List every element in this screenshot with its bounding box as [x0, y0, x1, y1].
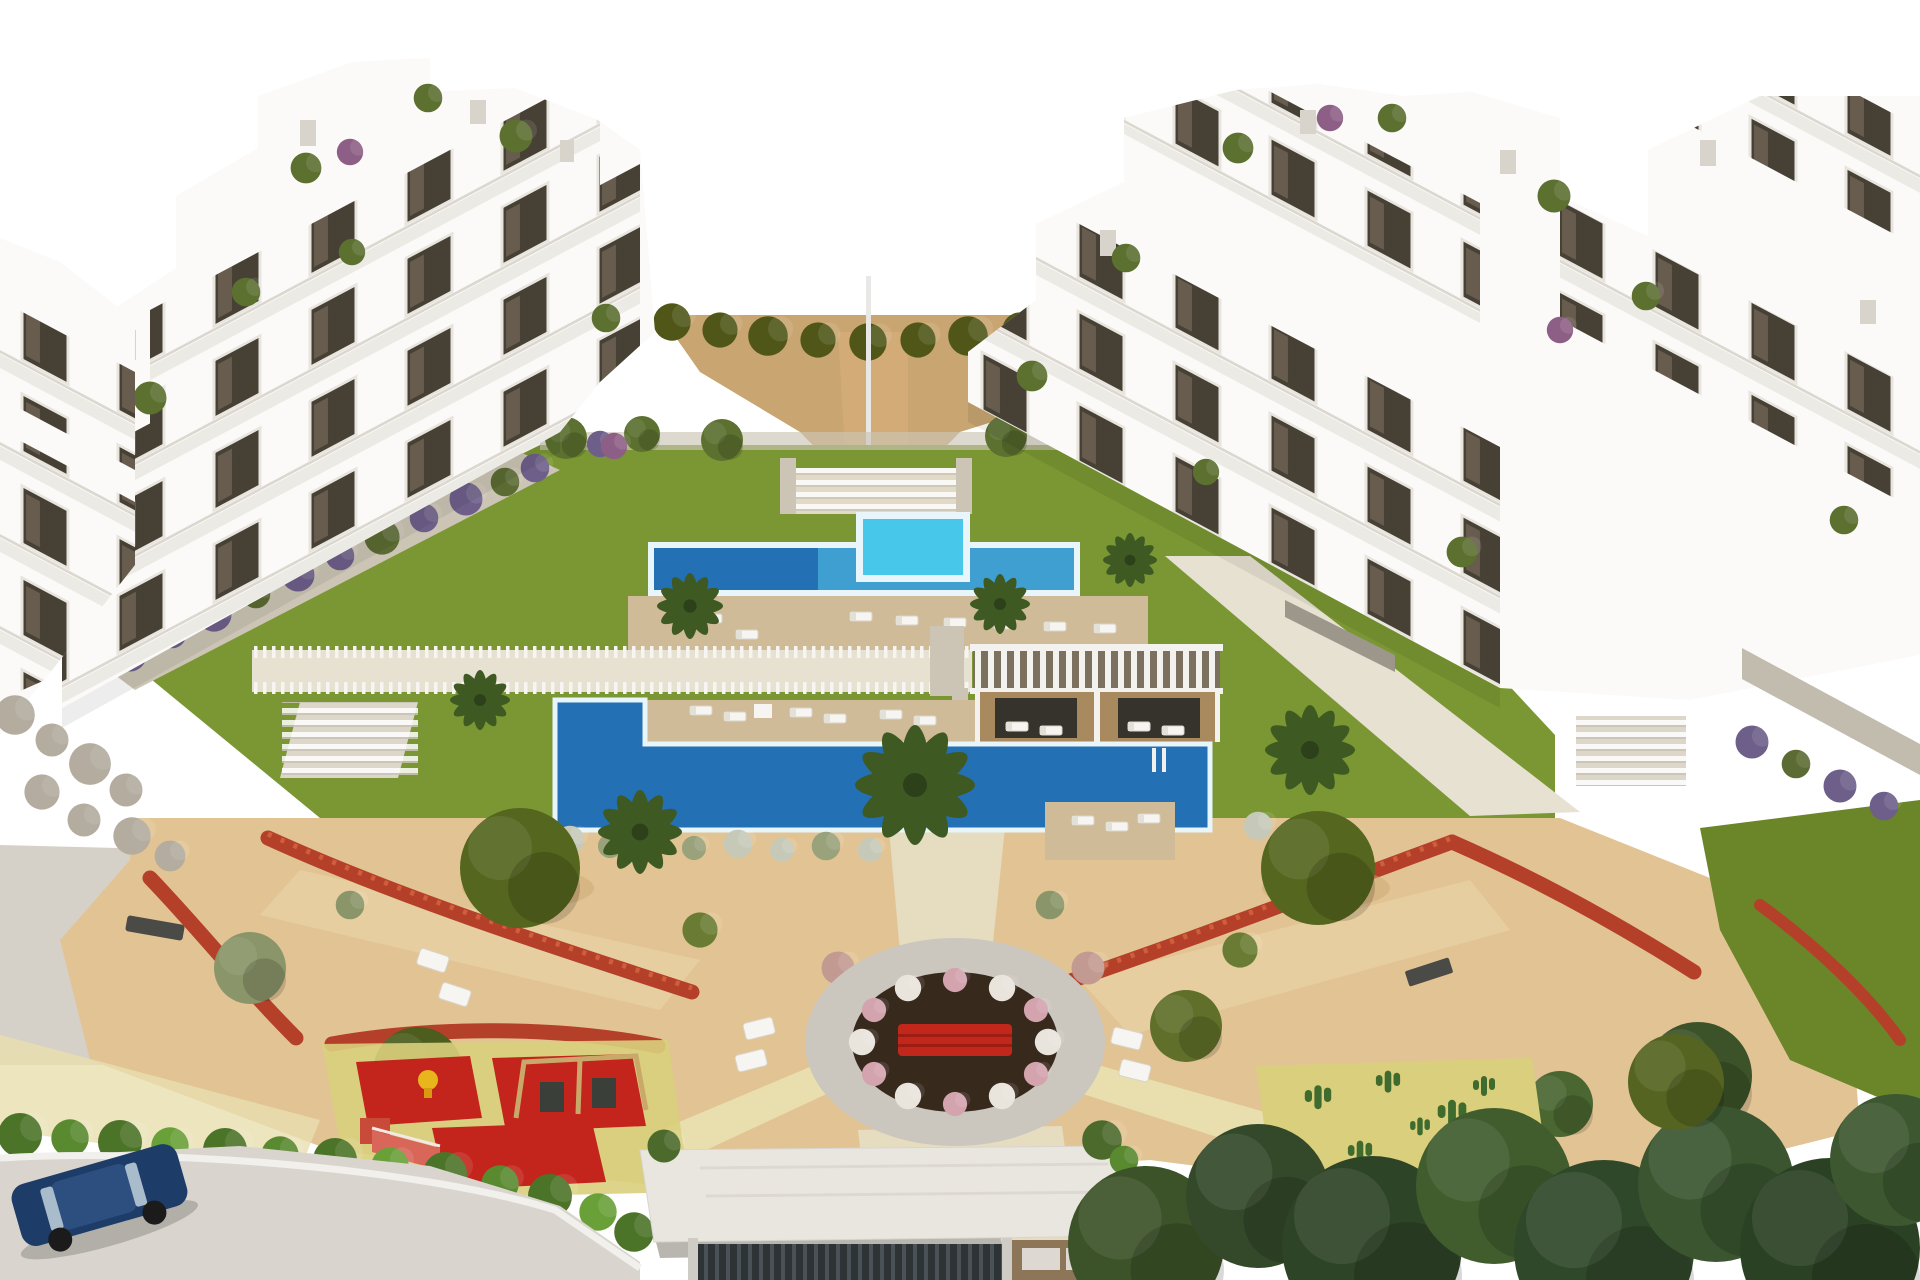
- render-canvas: [0, 0, 1920, 1280]
- stone-pillar: [930, 626, 964, 696]
- cabana-interior-left: [995, 698, 1077, 738]
- gate-post-right: [1002, 1238, 1012, 1280]
- sun-deck-lower: [640, 700, 975, 744]
- cabanas: [975, 692, 1220, 742]
- path-from-courtyard: [888, 818, 1006, 952]
- stairs-right: [1576, 716, 1686, 786]
- mailbox-panel: [1022, 1248, 1060, 1270]
- pergola: [970, 644, 1223, 694]
- red-bench: [898, 1024, 1012, 1056]
- gate-bars: [698, 1244, 1002, 1280]
- circular-plaza: [805, 938, 1105, 1146]
- cabana-interior-right: [1118, 698, 1200, 738]
- aerial-render: [0, 0, 1920, 1280]
- pergola-slats: [973, 648, 1220, 692]
- gate-post-left: [688, 1238, 698, 1280]
- spa-water: [863, 519, 963, 575]
- pool-ladder: [1152, 748, 1156, 772]
- stairs-left: [280, 702, 418, 778]
